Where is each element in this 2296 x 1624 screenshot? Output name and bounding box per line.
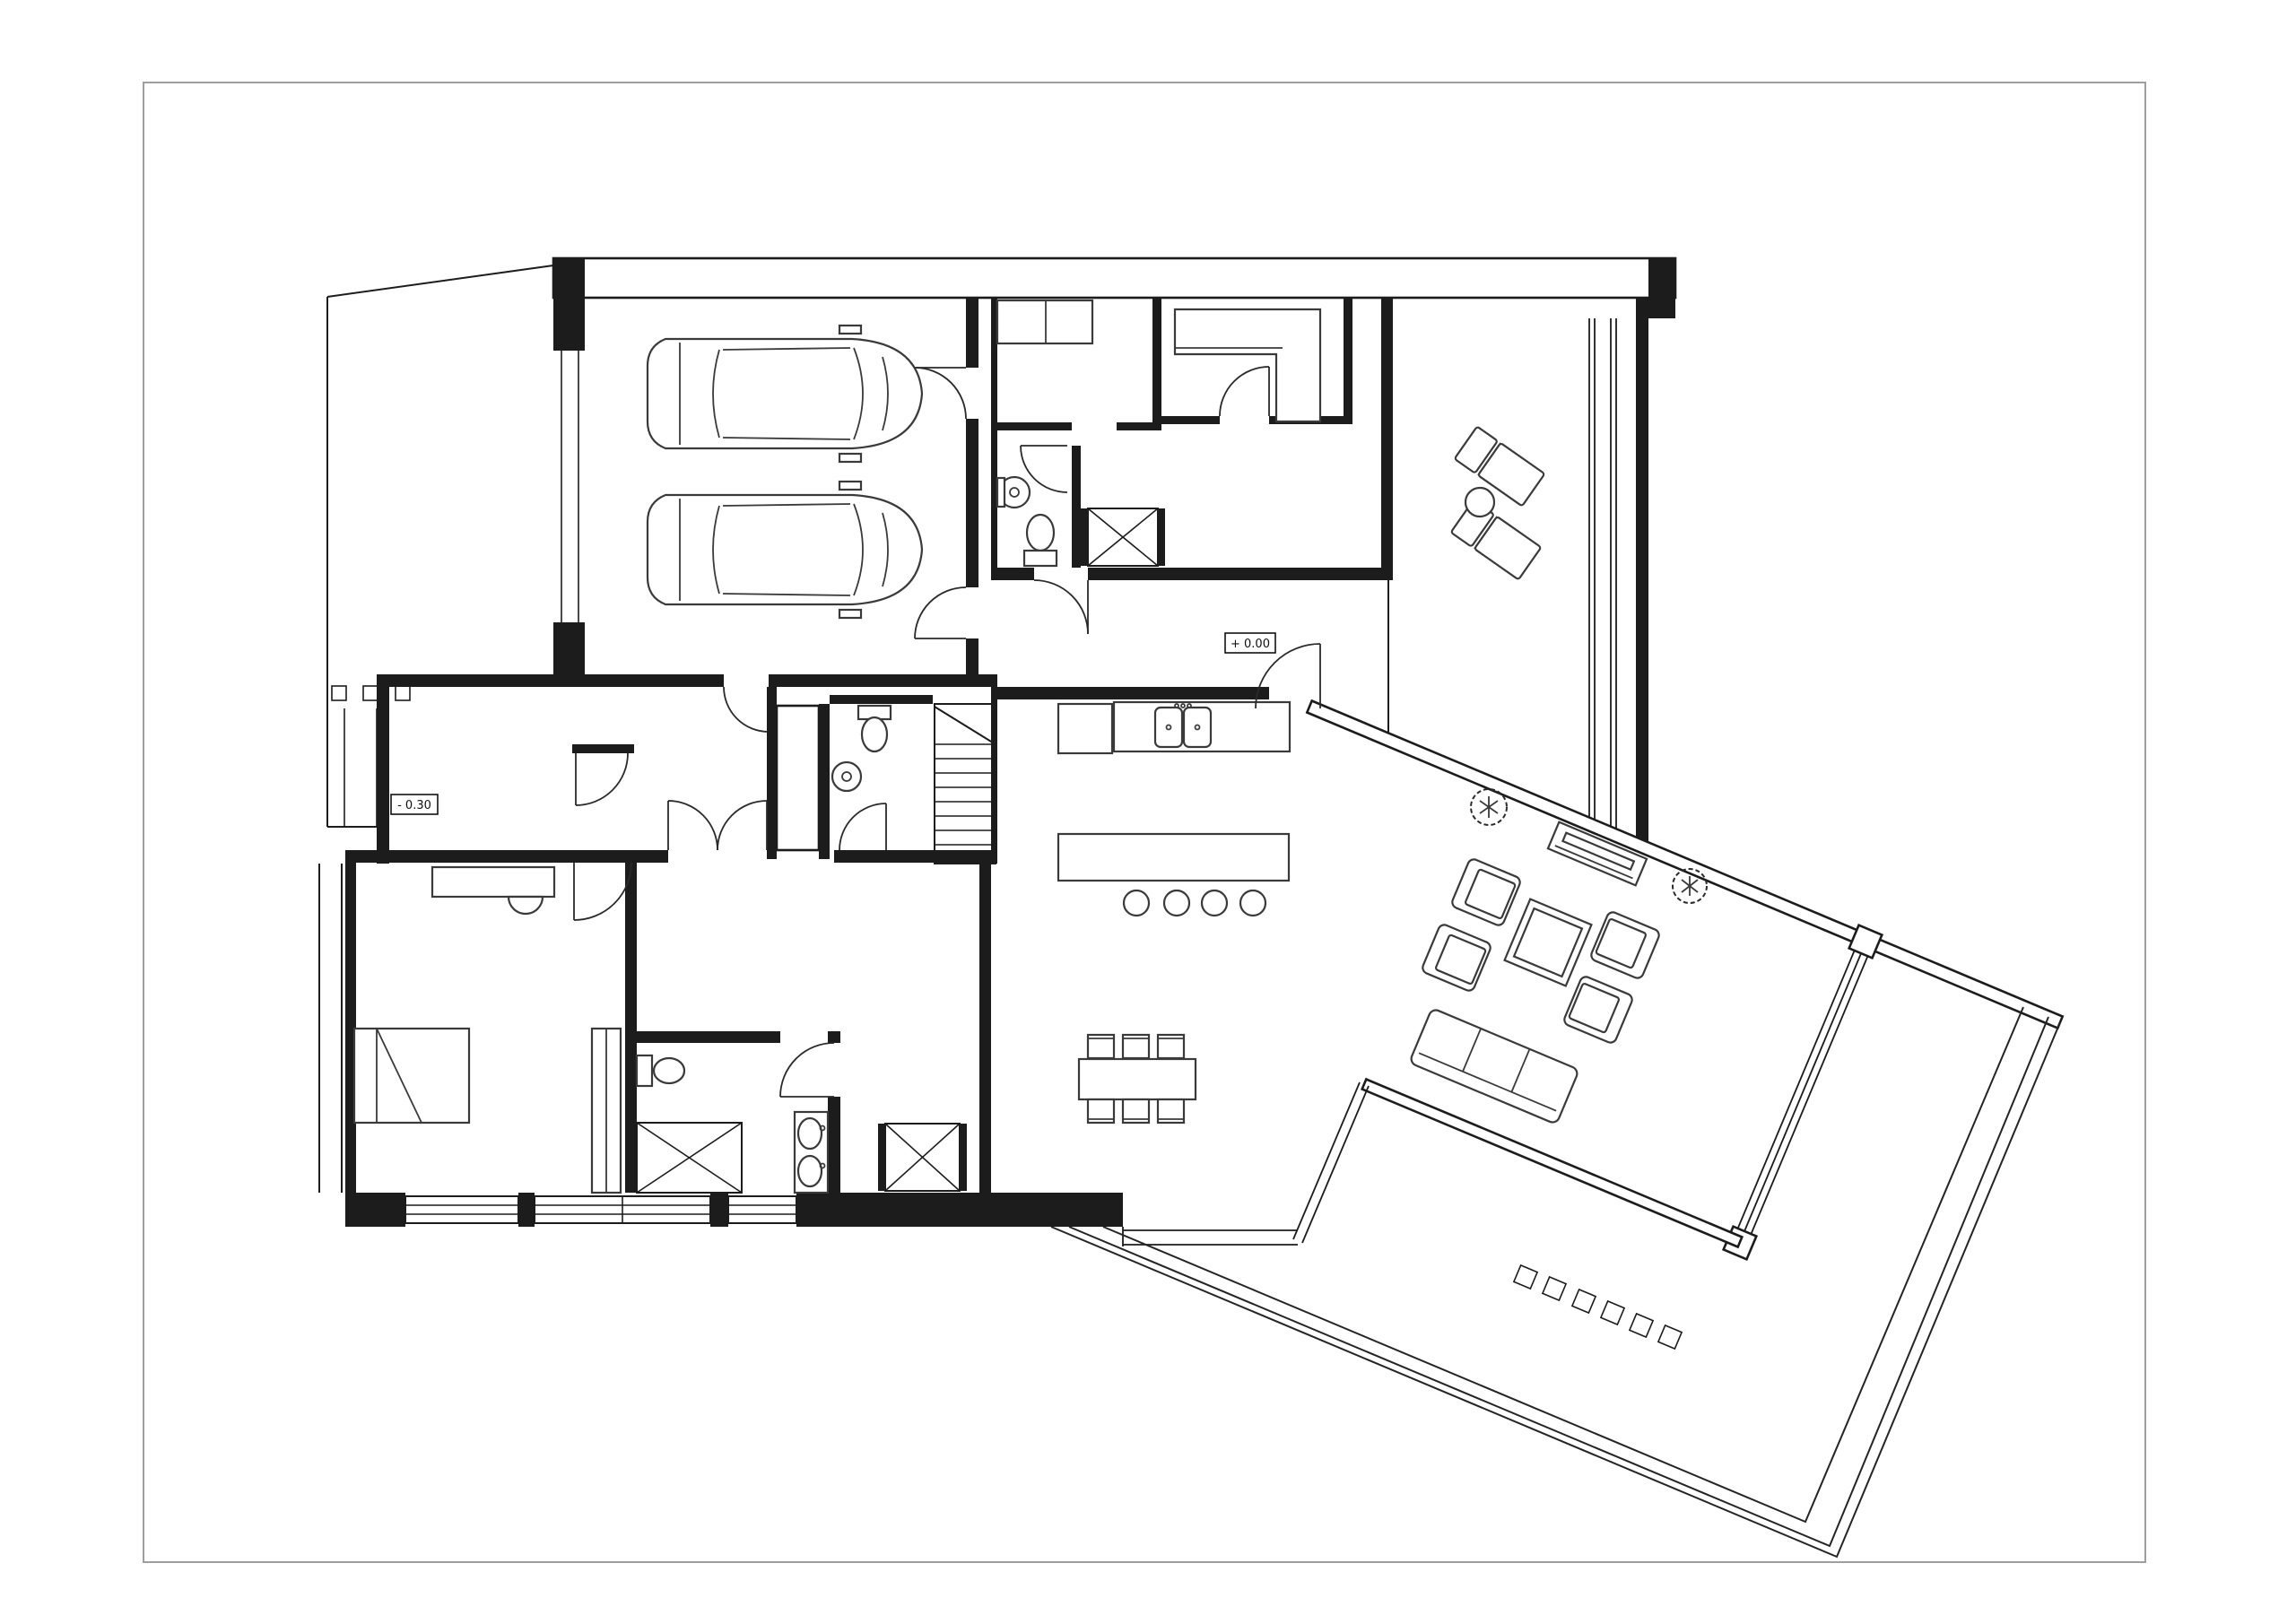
fence-post: [332, 686, 346, 700]
bathroom-door: [780, 1043, 834, 1097]
property-lines: [327, 265, 553, 827]
dining-chair: [1088, 1099, 1114, 1123]
garage-to-foyer-door: [724, 687, 769, 732]
bar-stool: [1202, 890, 1227, 916]
terrace-planters: [1514, 1265, 1682, 1349]
car-1: [648, 326, 922, 462]
toilet: [654, 1058, 684, 1083]
kitchen: [997, 687, 1290, 916]
elevation-main-label: + 0.00: [1231, 638, 1270, 651]
armchair: [1450, 857, 1522, 926]
fence-post: [363, 686, 378, 700]
elevation-entry-label: - 0.30: [397, 799, 431, 812]
hall-wardrobe-x: [878, 1124, 967, 1191]
bathroom: [637, 1043, 834, 1193]
foyer-closet-door: [576, 753, 628, 805]
living-north-wall: [1307, 701, 2062, 1029]
dining-area: [1079, 1035, 1196, 1123]
bedroom-block: [319, 850, 1123, 1227]
wardrobe-x-upper: [1081, 508, 1165, 566]
armchair: [1421, 923, 1492, 992]
dining-chair: [1158, 1035, 1184, 1058]
fridge: [1058, 704, 1112, 753]
dining-corner-glass: [1293, 1082, 1369, 1243]
bar-stool: [1240, 890, 1265, 916]
stair-break-line: [935, 707, 996, 744]
floor-plan-sheet: + 0.00 - 0.30: [0, 0, 2296, 1624]
staircase: [935, 687, 997, 864]
desk: [432, 867, 554, 897]
floor-plan-drawing: + 0.00 - 0.30: [0, 0, 2296, 1624]
dining-chair: [1123, 1035, 1149, 1058]
wc-stairs-door: [839, 803, 886, 850]
side-table: [1465, 488, 1494, 517]
elevation-marker-main: + 0.00: [1225, 633, 1275, 653]
desk-chair: [509, 897, 543, 914]
bedroom-door: [574, 863, 631, 920]
wc-stairs: [830, 695, 991, 863]
hall-door-from-cluster: [1034, 580, 1088, 634]
mudroom-door: [1220, 367, 1269, 416]
armchair: [1562, 975, 1634, 1044]
toilet: [1027, 515, 1054, 551]
armchair: [1589, 910, 1661, 979]
garage-window: [553, 350, 585, 623]
foyer-closet: [777, 706, 819, 850]
bedroom-window-2: [535, 1196, 710, 1223]
dining-chair: [1158, 1099, 1184, 1123]
vanity: [795, 1112, 828, 1193]
dining-table: [1079, 1059, 1196, 1099]
bed: [354, 1029, 469, 1123]
dining-chair: [1123, 1099, 1149, 1123]
car-2: [648, 482, 922, 618]
foyer: [572, 687, 830, 859]
elevation-marker-entry: - 0.30: [391, 795, 438, 814]
dining-south-glass: [1123, 1227, 1298, 1246]
toilet: [862, 717, 887, 751]
living-east-glass: [1724, 925, 1883, 1260]
oval-basin: [798, 1118, 822, 1149]
sun-lounger-2: [1451, 500, 1542, 580]
utility-cluster: [991, 298, 1393, 634]
coffee-table: [1505, 899, 1592, 986]
bedroom-window-1: [405, 1196, 518, 1223]
bar-stool: [1164, 890, 1189, 916]
double-doors: [668, 801, 767, 850]
wc-upper: [997, 446, 1067, 566]
kitchen-island: [1058, 834, 1289, 881]
garage: [648, 298, 978, 687]
shower: [637, 1123, 742, 1193]
oval-basin: [798, 1156, 822, 1186]
bathroom-window: [728, 1196, 796, 1223]
round-basin: [832, 762, 861, 791]
dining-chair: [1088, 1035, 1114, 1058]
garage-door-2: [915, 587, 966, 638]
bar-stool: [1124, 890, 1149, 916]
mudroom-bench: [1175, 309, 1320, 421]
sheet-border: [143, 83, 2145, 1562]
fence-post: [396, 686, 410, 700]
